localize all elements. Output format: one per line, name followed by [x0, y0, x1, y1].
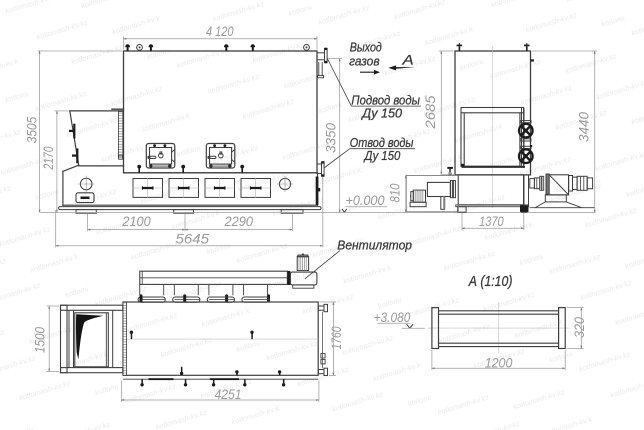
svg-text:Выход: Выход: [350, 40, 382, 55]
svg-text:газов: газов: [349, 54, 380, 69]
svg-text:А: А: [401, 51, 413, 67]
svg-text:А (1:10): А (1:10): [468, 273, 512, 290]
svg-text:5645: 5645: [176, 232, 210, 247]
svg-text:1200: 1200: [485, 356, 513, 371]
svg-text:4 120: 4 120: [206, 24, 234, 39]
svg-text:Ду 150: Ду 150: [363, 148, 401, 163]
svg-text:+3.080: +3.080: [374, 310, 411, 325]
svg-text:2290: 2290: [224, 214, 254, 229]
svg-text:2685: 2685: [423, 95, 438, 130]
svg-text:Вентилятор: Вентилятор: [337, 237, 412, 252]
svg-text:+0.000: +0.000: [346, 193, 386, 208]
svg-text:1500: 1500: [33, 327, 48, 353]
svg-text:3350: 3350: [324, 122, 339, 153]
svg-text:1370: 1370: [479, 214, 504, 229]
svg-text:2170: 2170: [41, 146, 56, 170]
svg-text:4251: 4251: [215, 387, 242, 402]
svg-text:320: 320: [572, 316, 587, 338]
svg-text:3440: 3440: [577, 111, 592, 142]
svg-text:2100: 2100: [121, 214, 151, 229]
svg-text:Ду 150: Ду 150: [360, 105, 402, 120]
svg-text:810: 810: [387, 183, 402, 202]
svg-text:1760: 1760: [329, 326, 344, 349]
svg-text:3505: 3505: [25, 116, 40, 143]
